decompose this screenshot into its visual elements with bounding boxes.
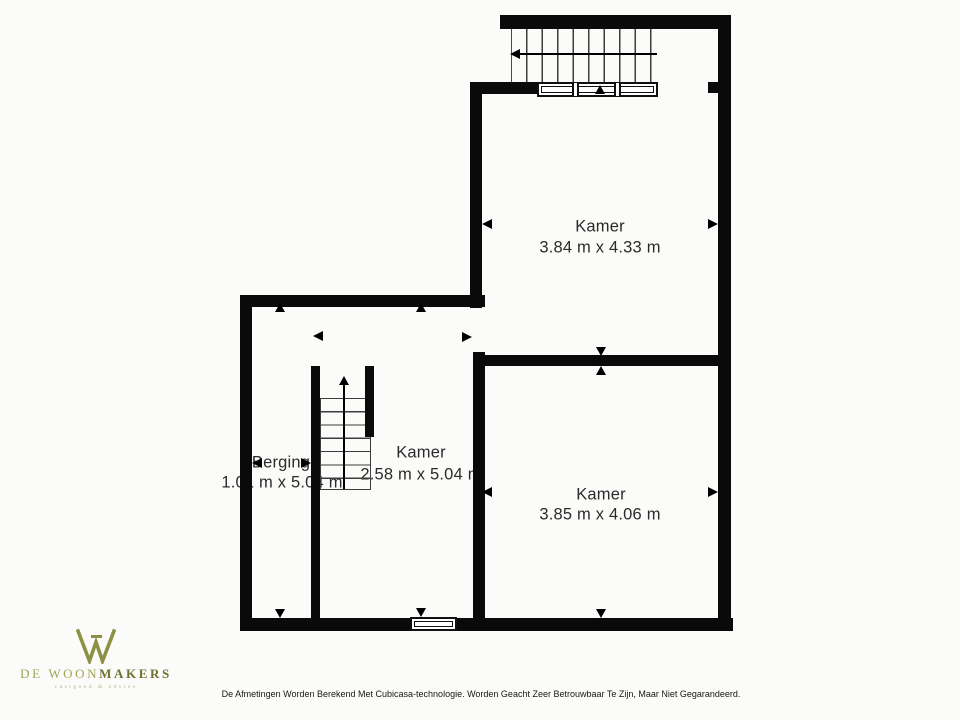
floor-plan: Kamer 3.84 m x 4.33 m Kamer 3.85 m x 4.0…	[0, 0, 960, 720]
wall-stair-right	[365, 366, 374, 437]
dim-arrow-left-icon	[313, 331, 323, 341]
room-dims-kamer-bottom: 3.85 m x 4.06 m	[539, 506, 660, 525]
dim-arrow-left-icon	[252, 458, 262, 468]
logo-wordmark: DE WOONMAKERS	[20, 666, 172, 682]
wall-bottom	[240, 618, 733, 631]
room-name-kamer-middle: Kamer	[396, 444, 446, 463]
room-name-kamer-bottom: Kamer	[576, 486, 626, 505]
room-dims-kamer-top: 3.84 m x 4.33 m	[539, 239, 660, 258]
dim-arrow-right-icon	[708, 487, 718, 497]
logo: DE WOONMAKERS vastgoed & advies	[20, 628, 172, 690]
wall-divider-lower	[473, 352, 485, 618]
dim-arrow-down-icon	[596, 609, 606, 618]
dim-arrow-right-icon	[301, 458, 311, 468]
logo-tagline: vastgoed & advies	[20, 684, 172, 690]
dim-arrow-up-icon	[416, 303, 426, 312]
upper-stair-direction-arrow-icon	[510, 49, 520, 59]
dim-arrow-right-icon	[708, 219, 718, 229]
dim-arrow-left-icon	[482, 487, 492, 497]
wall-right	[718, 15, 731, 631]
upper-staircase	[512, 29, 657, 82]
dim-arrow-down-icon	[596, 347, 606, 356]
dim-arrow-up-icon	[275, 303, 285, 312]
window-frame	[414, 621, 453, 627]
dim-arrow-right-icon	[462, 332, 472, 342]
wall-middle-horizontal	[473, 355, 728, 366]
room-dims-kamer-middle: 2.58 m x 5.04 m	[360, 466, 481, 485]
window-divider	[614, 83, 621, 96]
dim-arrow-up-icon	[596, 366, 606, 375]
dim-arrow-up-icon	[595, 85, 605, 94]
wall-top-stub	[708, 82, 720, 93]
upper-stair-direction-line	[519, 53, 657, 55]
window-divider	[572, 83, 579, 96]
window-bottom	[410, 617, 457, 631]
disclaimer-text: De Afmetingen Worden Berekend Met Cubica…	[222, 689, 741, 699]
logo-w-icon	[76, 628, 116, 664]
wall-stairwell-top	[500, 15, 731, 29]
logo-text-light: DE WOON	[20, 666, 99, 681]
room-name-kamer-top: Kamer	[575, 218, 625, 237]
lower-stair-direction-line	[343, 385, 345, 489]
wall-left	[240, 295, 252, 631]
logo-text-bold: MAKERS	[99, 666, 172, 681]
lower-staircase	[320, 398, 371, 490]
lower-stair-direction-arrow-icon	[339, 376, 349, 385]
dim-arrow-down-icon	[416, 608, 426, 617]
wall-berging-right	[311, 366, 320, 618]
dim-arrow-left-icon	[482, 219, 492, 229]
dim-arrow-down-icon	[275, 609, 285, 618]
wall-divider-upper	[470, 82, 482, 308]
